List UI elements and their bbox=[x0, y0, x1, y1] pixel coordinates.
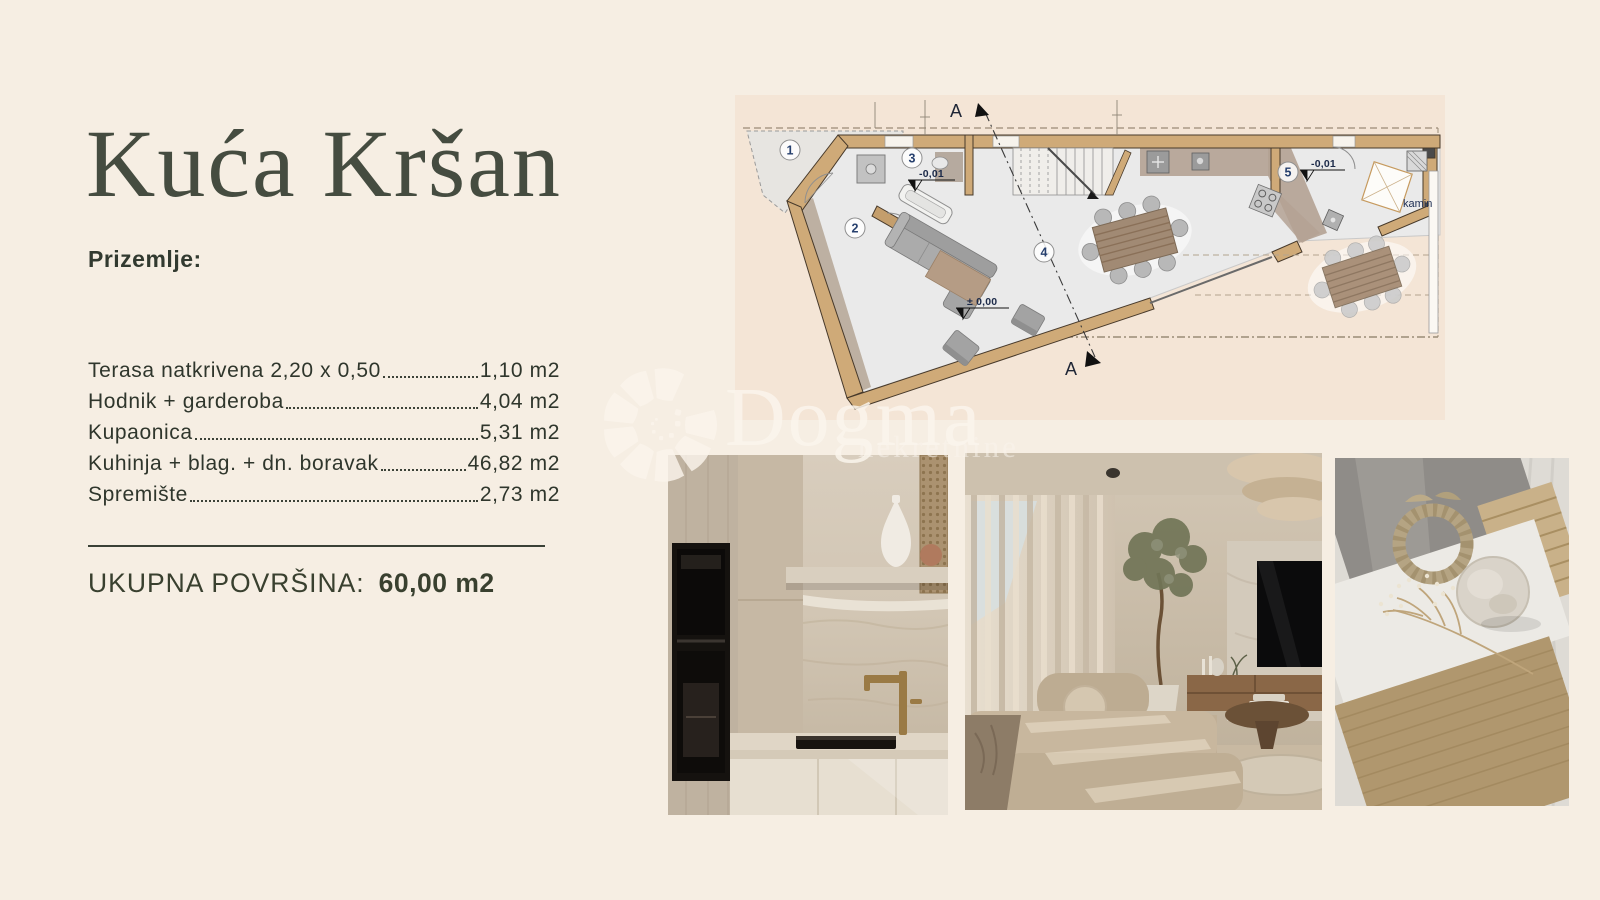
kitchen-photo bbox=[668, 455, 948, 815]
room-label: Kupaonica bbox=[88, 421, 193, 445]
floor-plan-image: A A -0,01 ± 0,00 -0,01 1 2 3 4 5 kamin bbox=[735, 95, 1445, 420]
room-number-1: 1 bbox=[787, 144, 794, 158]
room-value: 2,73 m2 bbox=[480, 483, 560, 507]
room-row-kuhinja: Kuhinja + blag. + dn. boravak 46,82 m2 bbox=[88, 445, 560, 476]
room-number-3: 3 bbox=[909, 152, 916, 166]
total-area-row: UKUPNA POVRŠINA: 60,00 m2 bbox=[88, 568, 495, 599]
room-row-terasa: Terasa natkrivena 2,20 x 0,50 1,10 m2 bbox=[88, 352, 560, 383]
room-number-5: 5 bbox=[1285, 166, 1292, 180]
room-value: 46,82 m2 bbox=[468, 452, 560, 476]
kitchen-photo-image bbox=[668, 455, 948, 815]
svg-text:± 0,00: ± 0,00 bbox=[967, 296, 997, 308]
room-value: 1,10 m2 bbox=[480, 359, 560, 383]
svg-text:-0,01: -0,01 bbox=[919, 168, 944, 180]
dot-leader bbox=[195, 438, 478, 440]
living-room-photo-image bbox=[965, 453, 1322, 810]
total-area-value: 60,00 m2 bbox=[379, 568, 495, 599]
page-title: Kuća Kršan bbox=[86, 116, 706, 212]
floor-section-label: Prizemlje: bbox=[88, 246, 202, 273]
section-letter-top: A bbox=[950, 101, 962, 121]
material-board-photo bbox=[1335, 458, 1569, 806]
total-area-label: UKUPNA POVRŠINA: bbox=[88, 568, 365, 599]
page-root: { "page": { "background": "#f6eee3" }, "… bbox=[0, 0, 1600, 900]
dot-leader bbox=[190, 500, 478, 502]
room-value: 5,31 m2 bbox=[480, 421, 560, 445]
room-label: Terasa natkrivena 2,20 x 0,50 bbox=[88, 359, 381, 383]
fireplace-label: kamin bbox=[1403, 198, 1432, 210]
room-row-hodnik: Hodnik + garderoba 4,04 m2 bbox=[88, 383, 560, 414]
room-label: Spremište bbox=[88, 483, 188, 507]
dot-leader bbox=[383, 376, 478, 378]
living-room-photo bbox=[965, 453, 1322, 810]
stairs bbox=[1013, 148, 1131, 199]
floor-plan-svg: A A -0,01 ± 0,00 -0,01 1 2 3 4 5 kamin bbox=[735, 95, 1445, 420]
right-boundary-strip bbox=[1429, 171, 1438, 333]
material-board-photo-image bbox=[1335, 458, 1569, 806]
dot-leader bbox=[286, 407, 478, 409]
room-number-4: 4 bbox=[1041, 246, 1048, 260]
room-label: Kuhinja + blag. + dn. boravak bbox=[88, 452, 379, 476]
room-row-kupaonica: Kupaonica 5,31 m2 bbox=[88, 414, 560, 445]
room-row-spremiste: Spremište 2,73 m2 bbox=[88, 476, 560, 507]
room-label: Hodnik + garderoba bbox=[88, 390, 284, 414]
svg-text:-0,01: -0,01 bbox=[1311, 158, 1336, 170]
room-area-list: Terasa natkrivena 2,20 x 0,50 1,10 m2 Ho… bbox=[88, 352, 560, 507]
room-value: 4,04 m2 bbox=[480, 390, 560, 414]
divider-line bbox=[88, 545, 545, 547]
room-number-2: 2 bbox=[852, 222, 859, 236]
section-letter-bottom: A bbox=[1065, 359, 1077, 379]
dot-leader bbox=[381, 469, 466, 471]
